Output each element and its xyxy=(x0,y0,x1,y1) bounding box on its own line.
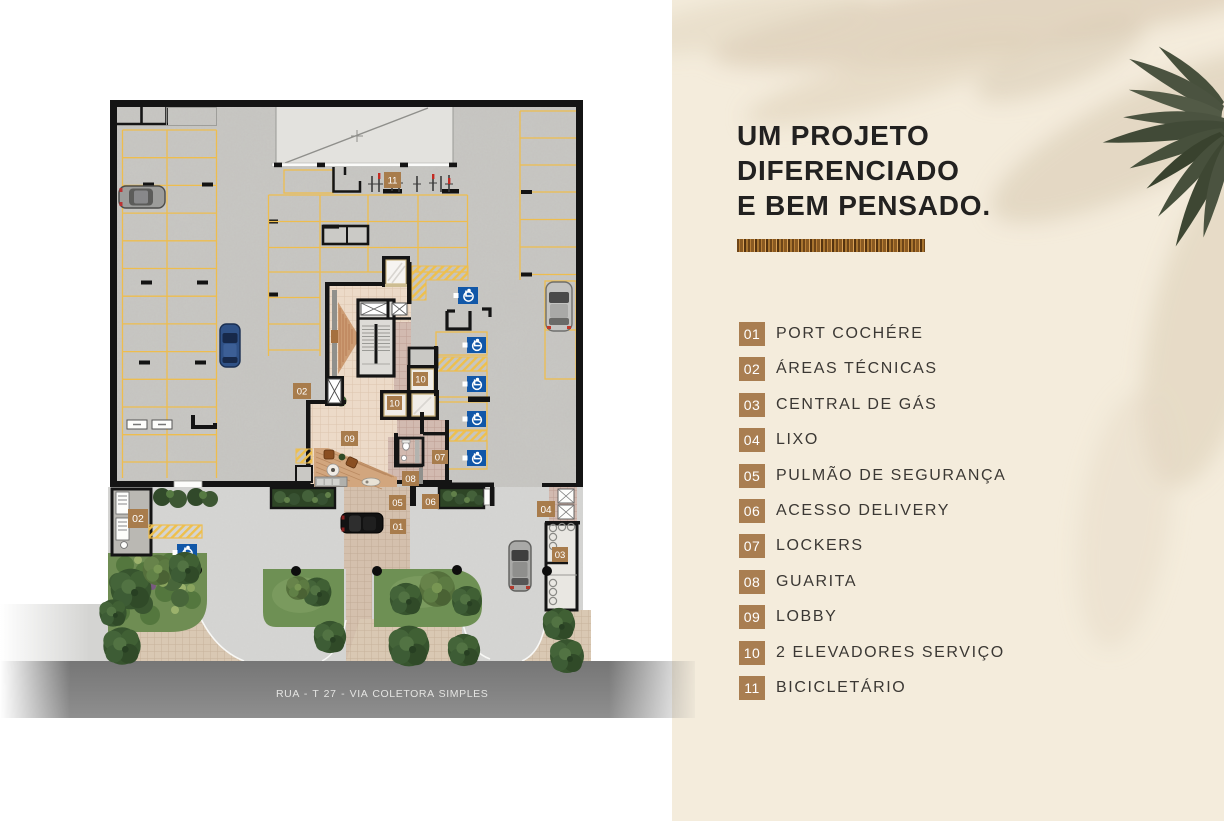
svg-text:08: 08 xyxy=(405,474,416,485)
svg-text:09: 09 xyxy=(344,434,355,445)
svg-text:07: 07 xyxy=(435,453,446,464)
svg-text:01: 01 xyxy=(393,522,404,533)
svg-text:05: 05 xyxy=(392,498,403,509)
svg-text:03: 03 xyxy=(555,550,566,561)
svg-text:11: 11 xyxy=(388,176,398,187)
svg-text:02: 02 xyxy=(132,513,144,525)
svg-text:10: 10 xyxy=(389,399,400,410)
svg-text:04: 04 xyxy=(540,505,552,516)
svg-text:10: 10 xyxy=(415,375,426,386)
svg-text:06: 06 xyxy=(425,497,436,508)
svg-text:02: 02 xyxy=(297,387,308,398)
svg-text:RUA - T 27 - VIA COLETORA SIMP: RUA - T 27 - VIA COLETORA SIMPLES xyxy=(276,688,488,700)
